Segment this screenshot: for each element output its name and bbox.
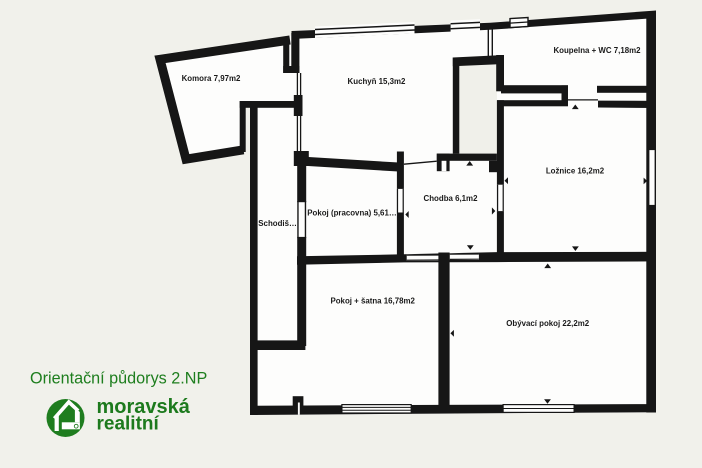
svg-text:Obývací pokoj 22,2m2: Obývací pokoj 22,2m2	[506, 319, 590, 328]
svg-text:realitní: realitní	[97, 414, 160, 435]
svg-text:Koupelna + WC 7,18m2: Koupelna + WC 7,18m2	[553, 46, 641, 55]
svg-text:Ložnice 16,2m2: Ložnice 16,2m2	[546, 167, 605, 176]
svg-text:Orientační půdorys 2.NP: Orientační půdorys 2.NP	[30, 370, 207, 388]
svg-text:Pokoj (pracovna) 5,61…: Pokoj (pracovna) 5,61…	[307, 209, 396, 218]
svg-text:Schodiš…: Schodiš…	[258, 219, 297, 228]
svg-text:Chodba 6,1m2: Chodba 6,1m2	[424, 194, 479, 203]
svg-text:Kuchyň 15,3m2: Kuchyň 15,3m2	[348, 77, 407, 86]
svg-text:Komora 7,97m2: Komora 7,97m2	[182, 74, 241, 83]
svg-text:Pokoj + šatna 16,78m2: Pokoj + šatna 16,78m2	[330, 297, 415, 306]
